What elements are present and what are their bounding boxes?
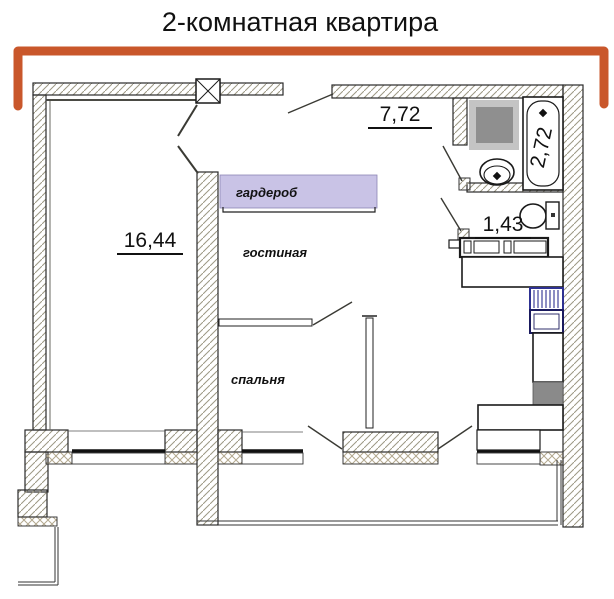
window2-sill [242, 453, 303, 464]
door-swings-group [178, 94, 472, 449]
hall-cabinet [449, 238, 548, 257]
wc-area: 1,43 [483, 213, 524, 236]
door-swing-room-a [178, 105, 197, 136]
wall-pillar-window1 [165, 430, 197, 452]
wall-top-right [332, 85, 563, 98]
window3-sill [477, 453, 540, 464]
page-title: 2-комнатная квартира [162, 7, 439, 37]
wall-bottom-left-foot [18, 490, 47, 517]
door-swing-wc [441, 198, 461, 231]
sill-kitchen [540, 452, 563, 465]
wardrobe-zone: гардероб [220, 175, 377, 212]
door-swing-entry [288, 94, 333, 113]
toilet [520, 202, 559, 229]
wall-right [563, 85, 583, 527]
kitchen-counter-right [533, 333, 563, 382]
wardrobe-label: гардероб [236, 185, 298, 200]
sill-left-b [18, 517, 57, 526]
column-box [196, 79, 220, 103]
washing-machine [469, 100, 519, 150]
sill-pillar2 [218, 452, 242, 464]
sill-pillar1 [165, 452, 197, 464]
partition-bedroom-right [362, 316, 377, 428]
wall-stub-bath [459, 178, 470, 190]
sill-balcony-pillar [343, 452, 438, 464]
sill-left-a [46, 452, 72, 464]
hall-area: 7,72 [380, 103, 421, 126]
fridge [530, 288, 563, 333]
wall-pillar-balcony [343, 432, 438, 452]
bedroom-label: спальня [231, 372, 285, 387]
door-swing-room-b [178, 146, 197, 172]
floorplan-page: 2-комнатная квартира [0, 0, 614, 599]
kitchen-group [462, 257, 563, 450]
wall-bath-left [453, 98, 467, 145]
wall-pillar-bottom-left [25, 430, 68, 452]
wall-interior-vertical [197, 172, 218, 525]
balcony-outline [18, 460, 561, 585]
kitchen-counter-top [462, 257, 563, 287]
window1-sill [72, 453, 165, 464]
room-main-area: 16,44 [124, 229, 177, 252]
door-swing-balcony-right [438, 426, 472, 449]
kitchen-counter-bottom [478, 405, 563, 430]
windows-group [68, 431, 540, 464]
wall-top-mid [220, 83, 283, 95]
living-label: гостиная [243, 245, 307, 260]
door-swing-balcony-left [308, 426, 342, 449]
kitchen-counter-window [477, 430, 540, 450]
wall-left [33, 95, 46, 430]
door-swing-bath [443, 146, 462, 181]
wall-bottom-left-step [25, 452, 48, 492]
partition-living-bedroom [219, 319, 312, 326]
sink [480, 159, 514, 185]
stove [533, 382, 563, 405]
bathtub: 2,72 [523, 97, 563, 190]
wall-pillar-window2 [218, 430, 242, 452]
door-swing-bedroom [313, 302, 352, 325]
wall-top-left [33, 83, 197, 95]
